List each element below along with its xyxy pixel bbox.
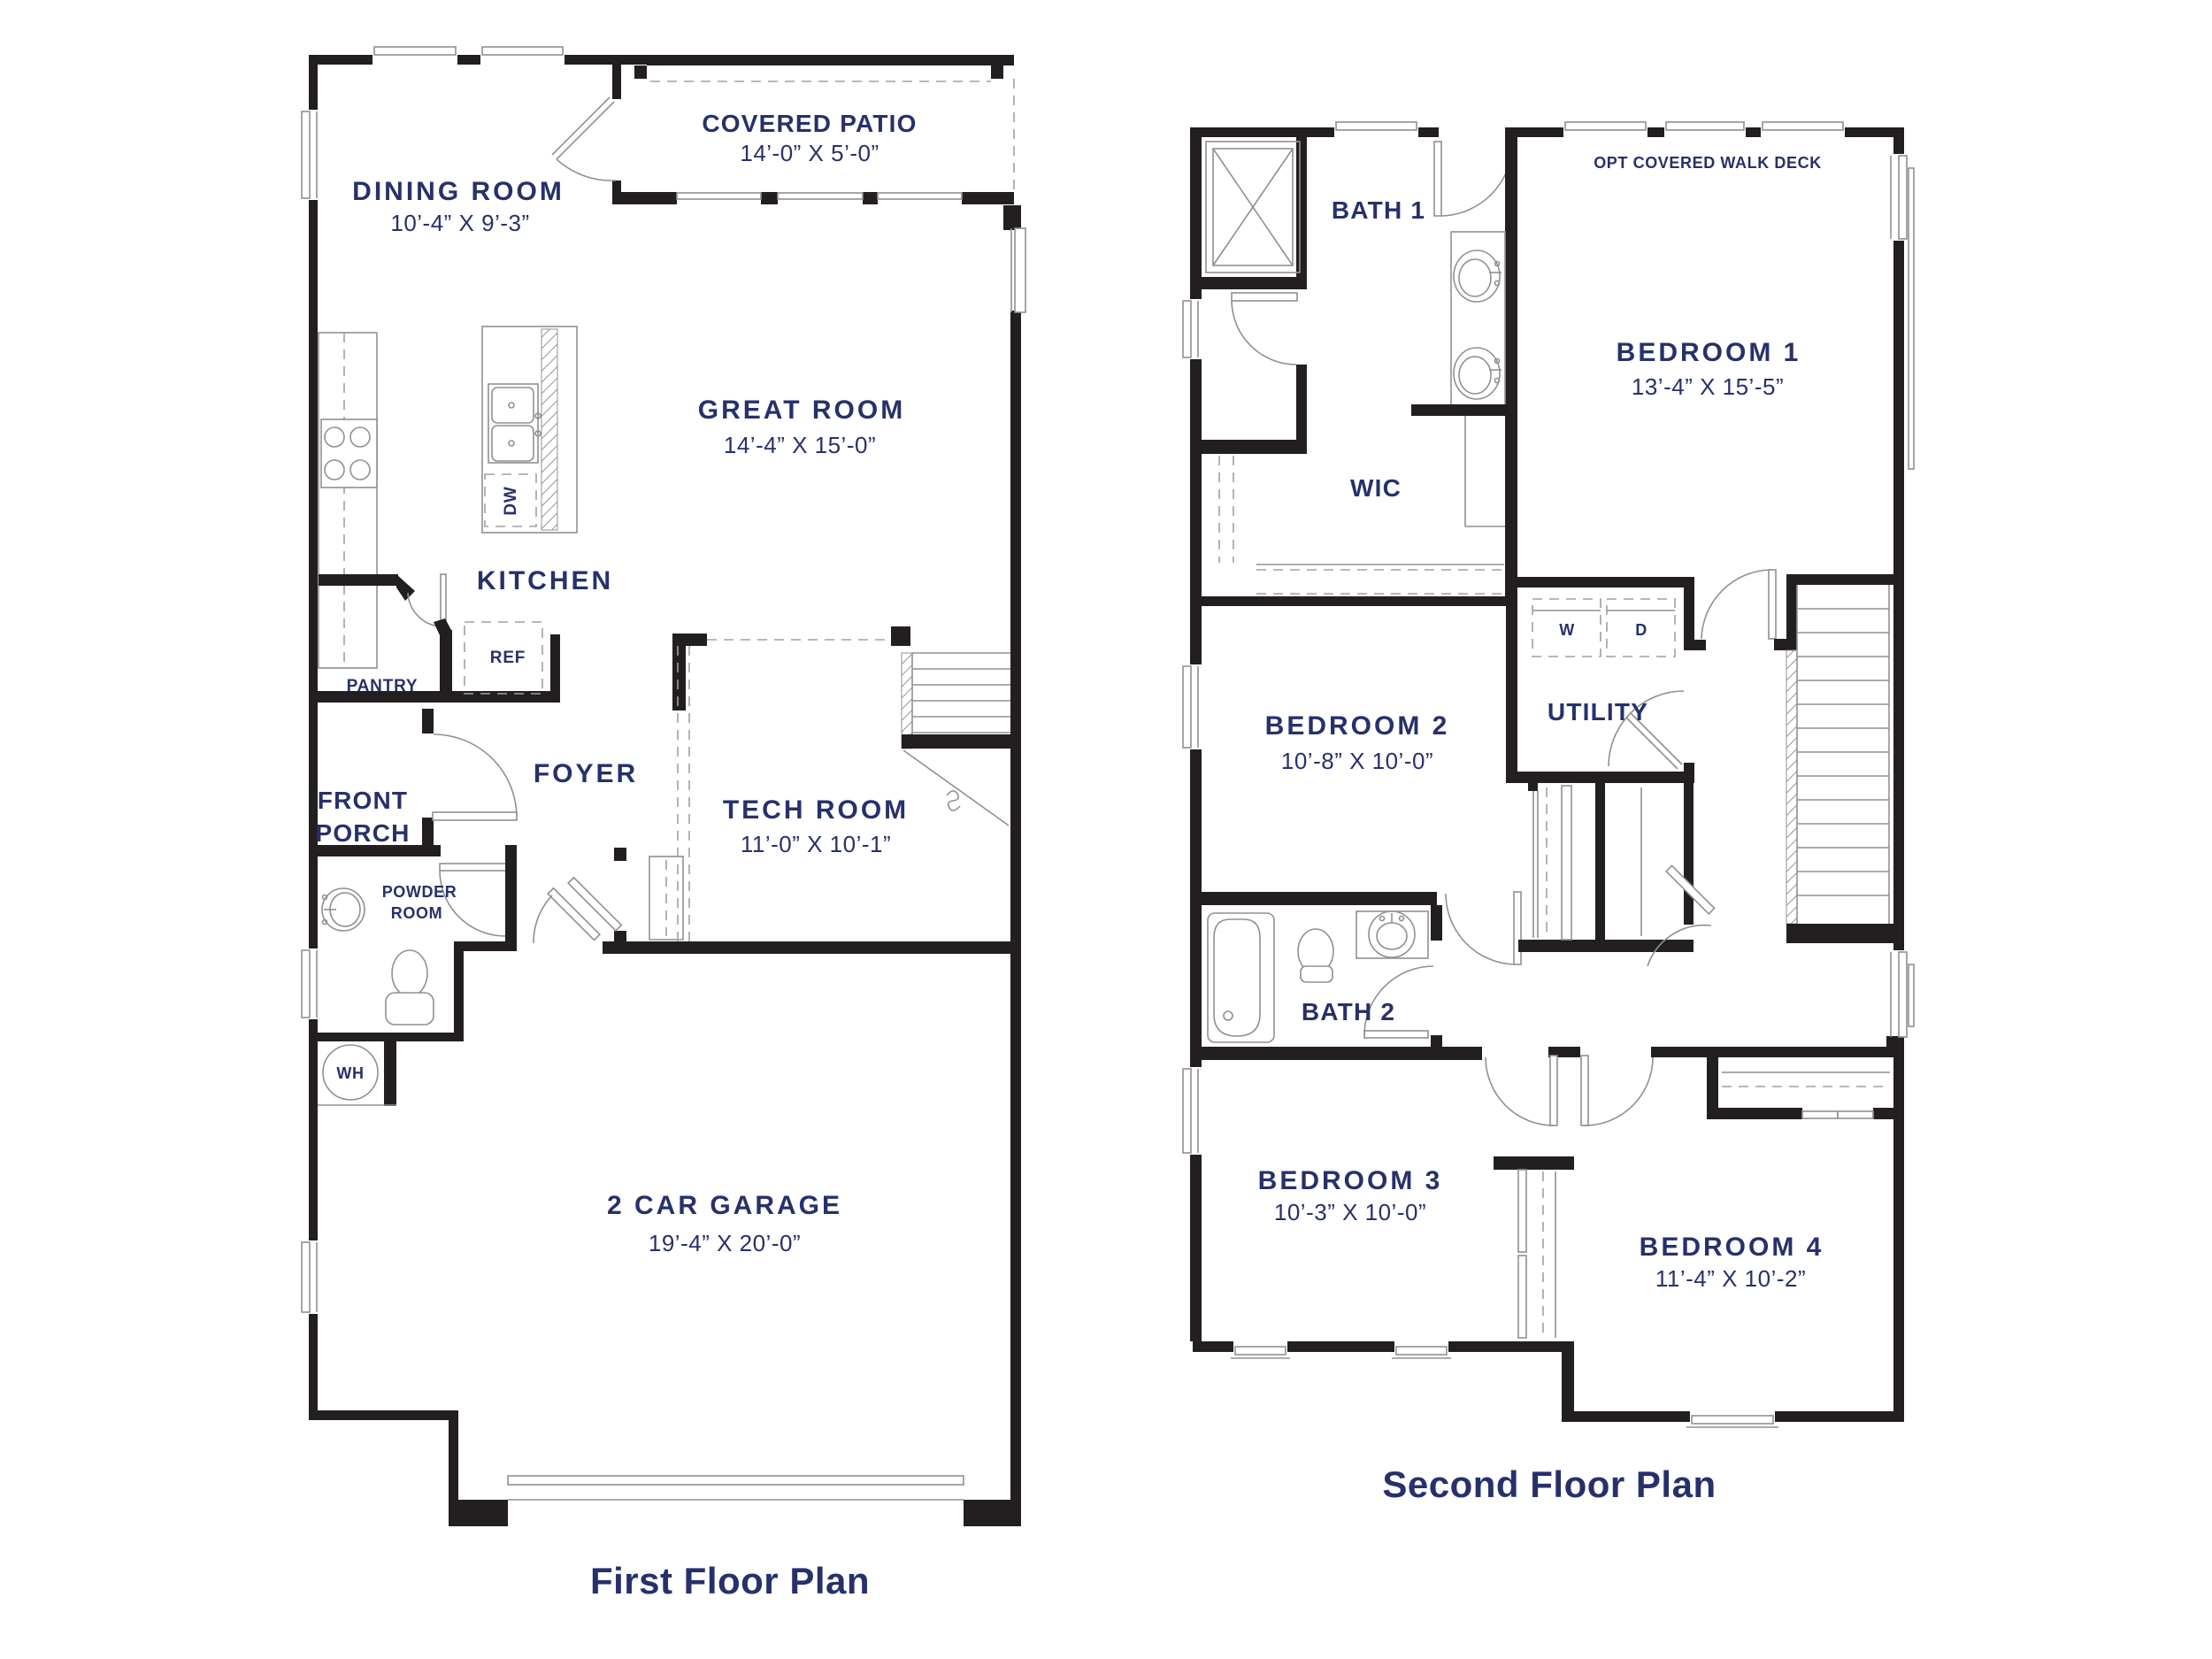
svg-text:TECH ROOM: TECH ROOM — [723, 795, 909, 825]
svg-text:DW: DW — [502, 486, 520, 515]
svg-text:REF: REF — [490, 649, 526, 667]
svg-text:W: W — [1559, 621, 1575, 639]
svg-text:14’-0” X 5’-0”: 14’-0” X 5’-0” — [740, 140, 879, 166]
svg-text:13’-4” X 15’-5”: 13’-4” X 15’-5” — [1632, 373, 1784, 400]
svg-text:COVERED PATIO: COVERED PATIO — [702, 110, 917, 137]
svg-text:2 CAR GARAGE: 2 CAR GARAGE — [607, 1191, 842, 1220]
svg-text:14’-4” X 15’-0”: 14’-4” X 15’-0” — [724, 432, 876, 458]
svg-text:10’-4” X 9’-3”: 10’-4” X 9’-3” — [390, 210, 529, 236]
svg-text:11’-0” X 10’-1”: 11’-0” X 10’-1” — [741, 831, 891, 857]
svg-text:GREAT ROOM: GREAT ROOM — [698, 396, 905, 425]
svg-text:10’-3” X 10’-0”: 10’-3” X 10’-0” — [1274, 1199, 1426, 1225]
svg-text:BATH 2: BATH 2 — [1302, 998, 1395, 1025]
svg-text:POWDER: POWDER — [382, 883, 457, 901]
svg-text:WIC: WIC — [1350, 474, 1402, 502]
svg-text:ROOM: ROOM — [391, 904, 442, 922]
svg-text:KITCHEN: KITCHEN — [477, 566, 613, 595]
svg-text:Second Floor Plan: Second Floor Plan — [1382, 1463, 1716, 1505]
svg-text:WH: WH — [336, 1064, 364, 1082]
svg-text:11’-4” X 10’-2”: 11’-4” X 10’-2” — [1655, 1265, 1806, 1292]
svg-text:BEDROOM 2: BEDROOM 2 — [1265, 711, 1450, 741]
svg-text:FRONT: FRONT — [318, 787, 408, 814]
svg-text:10’-8” X 10’-0”: 10’-8” X 10’-0” — [1281, 748, 1433, 774]
svg-text:OPT COVERED WALK DECK: OPT COVERED WALK DECK — [1594, 154, 1822, 172]
svg-text:BEDROOM 1: BEDROOM 1 — [1617, 338, 1801, 367]
svg-text:PORCH: PORCH — [315, 819, 410, 847]
svg-text:DINING ROOM: DINING ROOM — [352, 177, 565, 206]
svg-text:First Floor Plan: First Floor Plan — [590, 1560, 870, 1601]
svg-text:PANTRY: PANTRY — [347, 677, 419, 695]
svg-text:19’-4” X 20’-0”: 19’-4” X 20’-0” — [649, 1230, 801, 1256]
svg-text:BATH 1: BATH 1 — [1332, 196, 1425, 224]
svg-text:BEDROOM 4: BEDROOM 4 — [1640, 1233, 1824, 1262]
svg-text:FOYER: FOYER — [534, 759, 638, 788]
svg-text:BEDROOM 3: BEDROOM 3 — [1258, 1166, 1443, 1195]
svg-text:UTILITY: UTILITY — [1548, 698, 1648, 726]
svg-text:D: D — [1635, 621, 1647, 639]
